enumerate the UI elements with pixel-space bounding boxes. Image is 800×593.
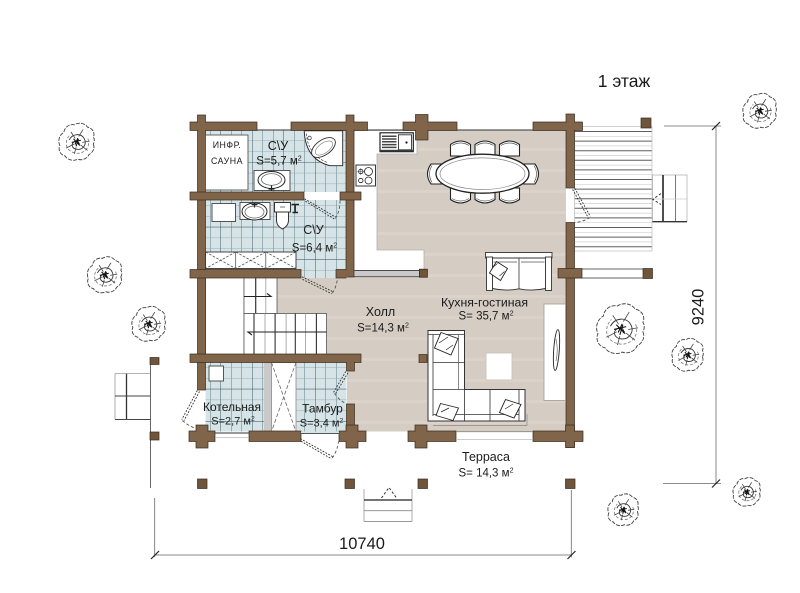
svg-text:С\У: С\У <box>268 139 289 153</box>
svg-text:S=6,4 м2: S=6,4 м2 <box>292 242 337 255</box>
svg-text:САУНА: САУНА <box>211 156 243 166</box>
svg-text:S= 35,7 м2: S= 35,7 м2 <box>458 310 513 323</box>
svg-text:S= 14,3 м2: S= 14,3 м2 <box>458 467 513 480</box>
svg-text:Кухня-гостиная: Кухня-гостиная <box>441 296 528 310</box>
svg-text:10740: 10740 <box>339 535 385 553</box>
svg-text:S=5,7 м2: S=5,7 м2 <box>256 155 301 168</box>
svg-text:S=3,4 м2: S=3,4 м2 <box>300 418 344 430</box>
svg-text:S=14,3 м2: S=14,3 м2 <box>357 322 409 335</box>
svg-text:S=2,7 м2: S=2,7 м2 <box>211 416 255 428</box>
svg-text:Холл: Холл <box>366 305 395 319</box>
svg-text:9240: 9240 <box>690 289 708 326</box>
svg-text:Тамбур: Тамбур <box>302 402 343 416</box>
svg-text:1 этаж: 1 этаж <box>598 71 651 91</box>
svg-text:С\У: С\У <box>303 223 324 237</box>
svg-text:ИНФР.: ИНФР. <box>213 140 242 150</box>
svg-text:Котельная: Котельная <box>203 400 261 414</box>
svg-text:Терраса: Терраса <box>462 450 510 464</box>
